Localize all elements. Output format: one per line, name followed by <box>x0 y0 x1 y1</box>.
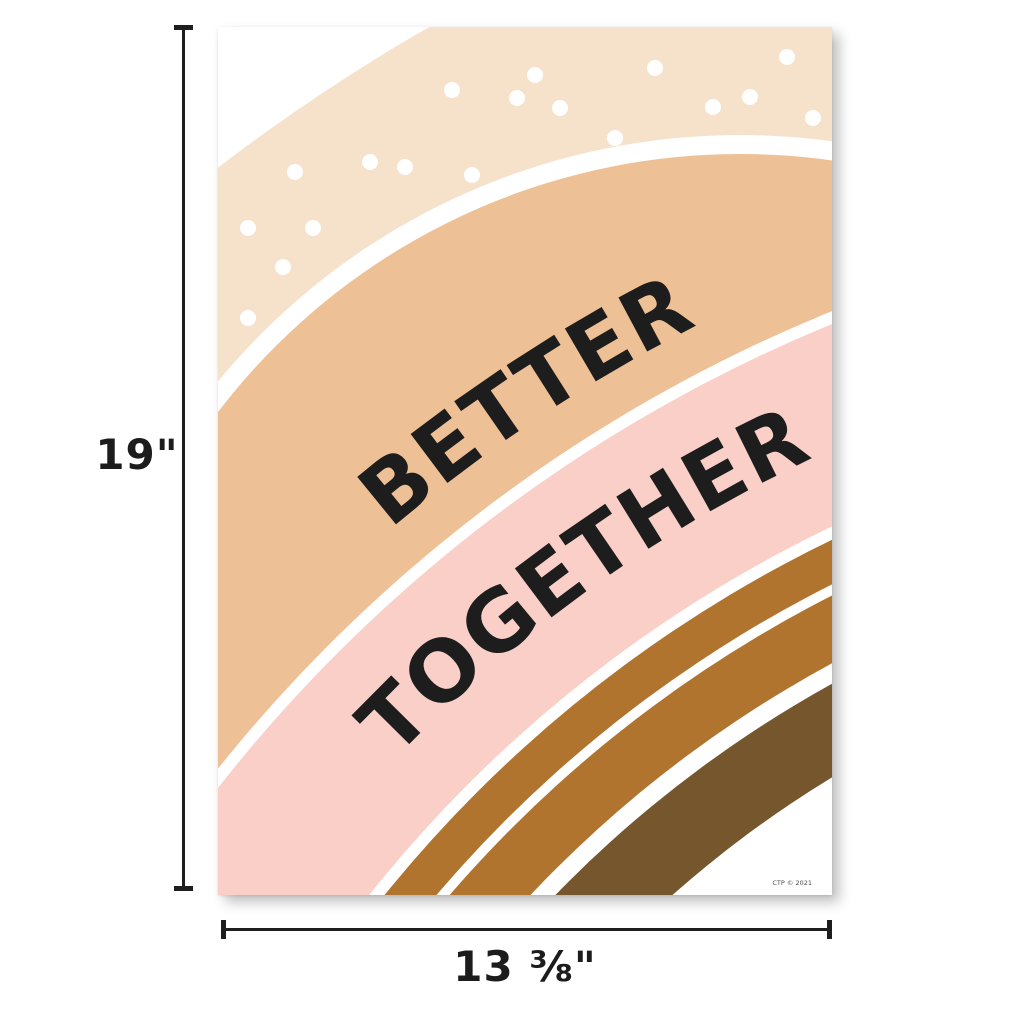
height-dimension-label: 19" <box>88 434 186 476</box>
polka-dot <box>552 100 568 116</box>
polka-dot <box>464 167 480 183</box>
width-dimension-line <box>221 928 832 931</box>
polka-dot <box>240 310 256 326</box>
polka-dot <box>805 110 821 126</box>
width-dimension-cap-left <box>221 920 226 939</box>
height-dimension-cap-top <box>174 25 193 30</box>
polka-dot <box>527 67 543 83</box>
polka-dot <box>607 130 623 146</box>
width-dimension-cap-right <box>827 920 832 939</box>
width-dimension-label: 13 ⅜" <box>420 946 630 988</box>
polka-dot <box>240 220 256 236</box>
polka-dot <box>444 82 460 98</box>
polka-dot <box>742 89 758 105</box>
polka-dot <box>705 99 721 115</box>
polka-dot <box>397 159 413 175</box>
polka-dot <box>305 220 321 236</box>
poster-image: BETTER TOGETHER CTP © 2021 <box>218 27 832 895</box>
polka-dot <box>779 49 795 65</box>
polka-dot <box>509 90 525 106</box>
polka-dot <box>287 164 303 180</box>
copyright-credit: CTP © 2021 <box>772 879 812 887</box>
polka-dot <box>362 154 378 170</box>
polka-dot <box>275 259 291 275</box>
polka-dot <box>647 60 663 76</box>
rainbow-artwork: BETTER TOGETHER CTP © 2021 <box>218 27 832 895</box>
height-dimension-cap-bottom <box>174 886 193 891</box>
